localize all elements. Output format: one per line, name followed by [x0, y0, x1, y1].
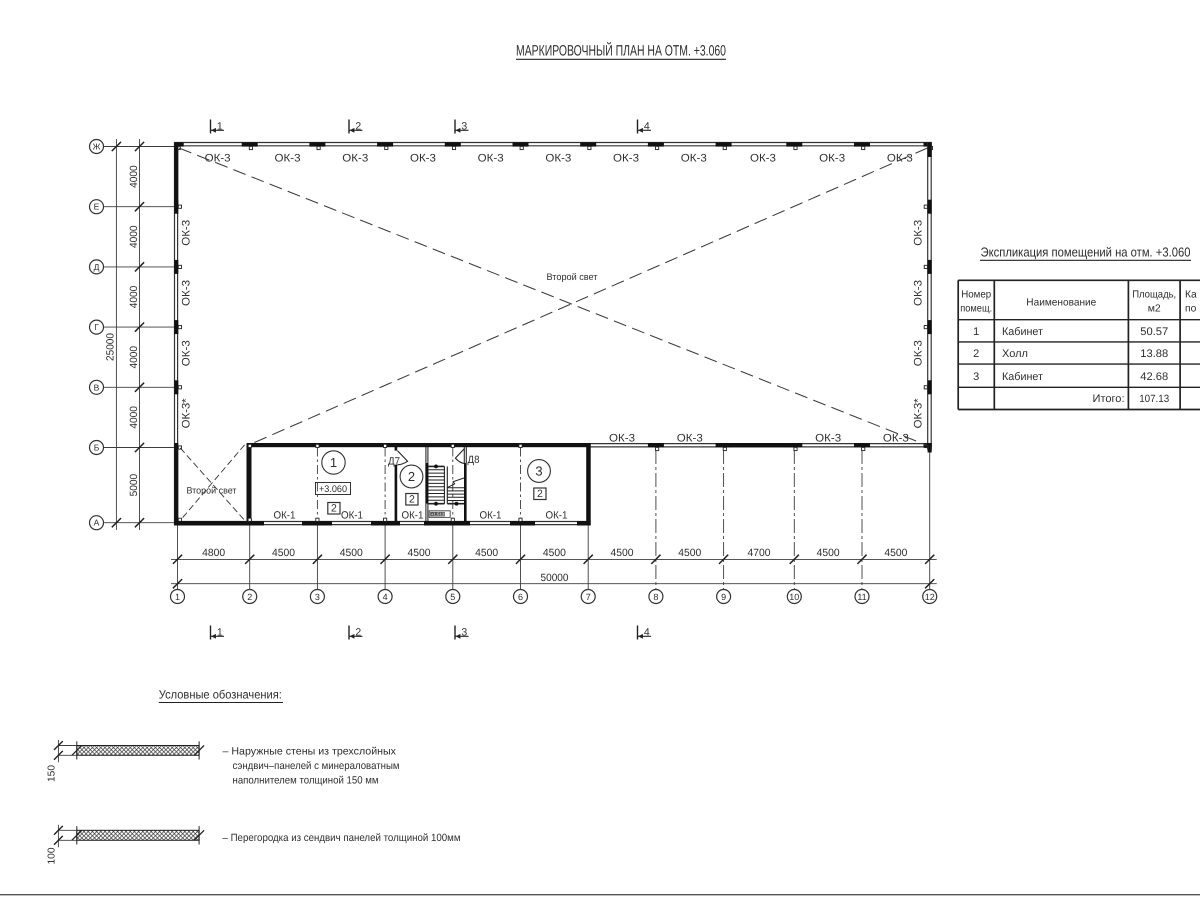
svg-text:ОК-3*: ОК-3* [181, 398, 193, 429]
svg-text:Б: Б [94, 443, 100, 453]
svg-text:ОК-3: ОК-3 [815, 433, 841, 445]
svg-text:ОК-3: ОК-3 [342, 152, 368, 164]
svg-text:3: 3 [461, 626, 467, 638]
svg-text:9: 9 [721, 592, 726, 602]
svg-text:Холл: Холл [1002, 348, 1028, 360]
svg-text:ОК-3*: ОК-3* [912, 398, 924, 429]
svg-text:25000: 25000 [104, 333, 116, 361]
svg-text:7: 7 [586, 592, 591, 602]
svg-text:4000: 4000 [128, 286, 140, 309]
svg-text:ОК-3: ОК-3 [750, 152, 776, 164]
svg-text:Е: Е [94, 202, 100, 212]
svg-text:В: В [94, 382, 100, 392]
svg-text:1: 1 [217, 120, 223, 132]
svg-text:12: 12 [925, 592, 935, 602]
svg-text:42.68: 42.68 [1140, 371, 1168, 383]
svg-text:4: 4 [383, 592, 388, 602]
svg-text:10: 10 [789, 592, 799, 602]
svg-text:Д7: Д7 [388, 455, 400, 467]
svg-text:4500: 4500 [817, 547, 840, 559]
svg-text:4700: 4700 [747, 547, 770, 559]
svg-text:Площадь,: Площадь, [1132, 290, 1176, 301]
svg-text:4500: 4500 [340, 547, 363, 559]
svg-text:ОК-3: ОК-3 [181, 280, 193, 306]
svg-text:ОК-3: ОК-3 [677, 433, 703, 445]
svg-text:8: 8 [653, 592, 658, 602]
svg-text:ОК-3: ОК-3 [912, 340, 924, 366]
svg-text:Д: Д [94, 262, 100, 272]
svg-text:ОК-3: ОК-3 [181, 220, 193, 246]
svg-text:+3.060: +3.060 [319, 484, 347, 495]
svg-text:Ка: Ка [1185, 290, 1197, 301]
svg-text:4500: 4500 [272, 547, 295, 559]
svg-text:2: 2 [247, 592, 252, 602]
svg-text:6: 6 [518, 592, 523, 602]
svg-text:Второй свет: Второй свет [187, 486, 238, 496]
svg-text:4: 4 [644, 120, 650, 132]
svg-text:2: 2 [537, 488, 543, 500]
svg-text:Номер: Номер [961, 290, 991, 301]
svg-text:ОК-1: ОК-1 [341, 510, 363, 522]
svg-text:Кабинет: Кабинет [1002, 326, 1043, 338]
svg-text:ОК-3: ОК-3 [205, 152, 231, 164]
svg-text:ОК-1: ОК-1 [402, 510, 424, 522]
svg-text:4500: 4500 [475, 547, 498, 559]
svg-text:11: 11 [857, 592, 866, 602]
svg-text:Д8: Д8 [468, 454, 480, 466]
svg-text:Кабинет: Кабинет [1002, 371, 1043, 383]
svg-text:3: 3 [535, 464, 542, 479]
svg-text:4500: 4500 [611, 547, 634, 559]
svg-text:150: 150 [47, 765, 58, 782]
svg-text:ОК-3: ОК-3 [883, 433, 909, 445]
svg-text:– Наружные стены из трехслойны: – Наружные стены из трехслойных [223, 746, 397, 758]
svg-text:ОК-3: ОК-3 [545, 152, 571, 164]
svg-text:Условные обозначения:: Условные обозначения: [159, 688, 282, 702]
svg-text:4500: 4500 [407, 547, 430, 559]
svg-text:наполнителем толщиной 150 мм: наполнителем толщиной 150 мм [233, 775, 379, 787]
svg-text:ОК-3: ОК-3 [613, 152, 639, 164]
svg-text:ОК-3: ОК-3 [275, 152, 301, 164]
svg-text:ОК-3: ОК-3 [478, 152, 504, 164]
svg-text:Второй свет: Второй свет [547, 272, 599, 283]
svg-text:МАРКИРОВОЧНЫЙ ПЛАН НА ОТМ. +3.: МАРКИРОВОЧНЫЙ ПЛАН НА ОТМ. +3.060 [516, 42, 726, 60]
svg-text:50.57: 50.57 [1140, 326, 1168, 338]
svg-text:5: 5 [450, 592, 455, 602]
svg-text:ОК-3: ОК-3 [819, 152, 845, 164]
svg-text:4000: 4000 [128, 225, 140, 248]
svg-text:4000: 4000 [128, 406, 140, 429]
svg-text:3: 3 [461, 120, 467, 132]
svg-text:2: 2 [355, 120, 361, 132]
svg-text:2: 2 [408, 469, 415, 484]
svg-text:ОК-3: ОК-3 [681, 152, 707, 164]
svg-text:ОК-3: ОК-3 [410, 152, 436, 164]
svg-text:ОК-3: ОК-3 [181, 340, 193, 366]
svg-text:1: 1 [330, 455, 337, 470]
svg-text:Ж: Ж [93, 142, 101, 152]
svg-text:+1.513: +1.513 [431, 512, 445, 517]
svg-text:2: 2 [409, 494, 415, 506]
svg-text:2: 2 [973, 348, 979, 360]
svg-text:по: по [1185, 304, 1197, 315]
svg-text:ОК-3: ОК-3 [609, 433, 635, 445]
svg-text:13.88: 13.88 [1140, 348, 1168, 360]
svg-text:А: А [94, 518, 100, 528]
svg-text:1: 1 [217, 626, 223, 638]
svg-text:Г: Г [94, 322, 99, 332]
svg-text:помещ.: помещ. [960, 304, 992, 315]
svg-text:4000: 4000 [128, 165, 140, 188]
svg-text:ОК-1: ОК-1 [546, 510, 568, 522]
svg-text:Итого:: Итого: [1093, 393, 1125, 405]
svg-text:4500: 4500 [884, 547, 907, 559]
svg-text:м2: м2 [1148, 304, 1161, 315]
svg-text:1: 1 [175, 592, 180, 602]
svg-text:Экспликация помещений на отм.: Экспликация помещений на отм. +3.060 [981, 245, 1191, 260]
svg-text:4800: 4800 [202, 547, 225, 559]
svg-text:50000: 50000 [541, 572, 569, 584]
svg-text:ОК-1: ОК-1 [274, 510, 296, 522]
svg-text:3: 3 [973, 371, 979, 383]
svg-text:5000: 5000 [128, 474, 140, 497]
svg-text:4000: 4000 [128, 346, 140, 369]
svg-text:100: 100 [47, 847, 58, 864]
svg-text:ОК-1: ОК-1 [480, 510, 502, 522]
svg-text:4500: 4500 [543, 547, 566, 559]
svg-text:ОК-3: ОК-3 [887, 152, 913, 164]
svg-text:– Перегородка из сендвич панел: – Перегородка из сендвич панелей толщино… [223, 832, 461, 844]
svg-text:4500: 4500 [678, 547, 701, 559]
svg-text:сэндвич–панелей с минераловатн: сэндвич–панелей с минераловатным [233, 760, 400, 772]
svg-text:Наименование: Наименование [1026, 297, 1096, 308]
svg-text:107.13: 107.13 [1139, 393, 1169, 405]
svg-text:ОК-3: ОК-3 [912, 220, 924, 246]
svg-text:3: 3 [315, 592, 320, 602]
svg-text:2: 2 [331, 503, 337, 515]
svg-text:4: 4 [644, 626, 650, 638]
svg-text:2: 2 [355, 626, 361, 638]
svg-text:ОК-3: ОК-3 [912, 280, 924, 306]
svg-text:1: 1 [973, 326, 979, 338]
